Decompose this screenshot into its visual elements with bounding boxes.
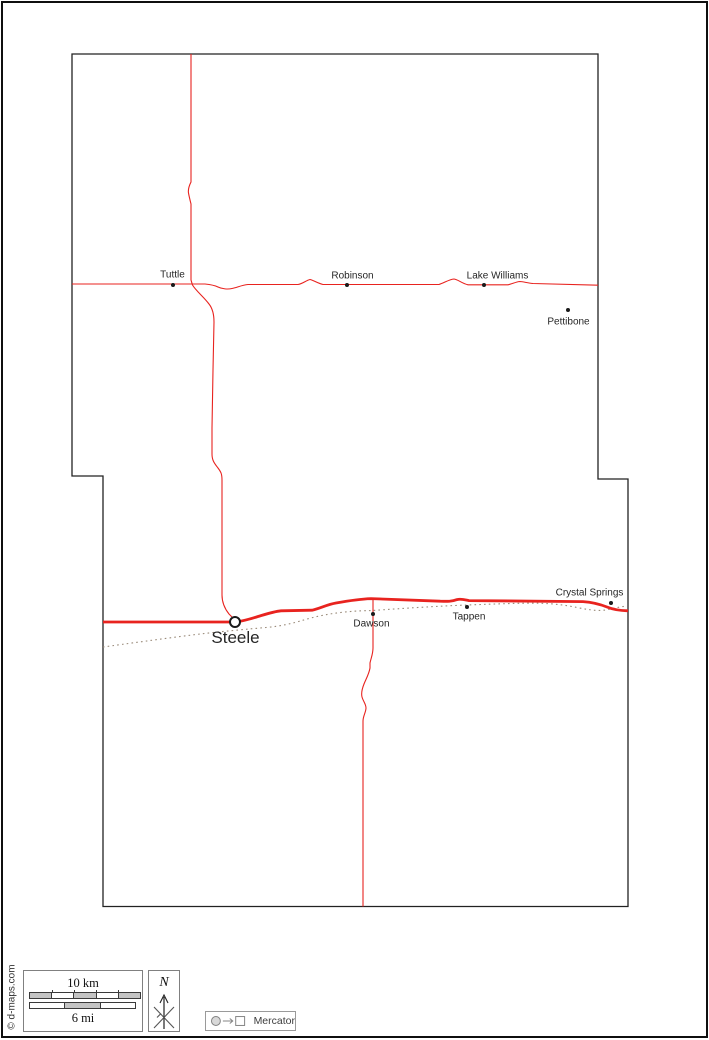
scale-bar-km <box>29 992 141 999</box>
town-dot-tappen <box>465 605 469 609</box>
legend-symbols <box>209 1014 249 1028</box>
town-dot-tuttle <box>171 283 175 287</box>
town-label-tappen: Tappen <box>453 612 486 623</box>
town-dot-crystal-springs <box>609 601 613 605</box>
map-page: TuttleRobinsonLake WilliamsPettiboneStee… <box>0 0 709 1040</box>
town-label-dawson: Dawson <box>353 619 389 630</box>
scale-segment <box>30 1003 64 1008</box>
projection-legend: Mercator <box>205 1011 296 1031</box>
town-label-pettibone: Pettibone <box>547 317 589 328</box>
town-label-lake-williams: Lake Williams <box>467 271 529 282</box>
town-label-robinson: Robinson <box>331 271 373 282</box>
county-seat-marker-steele <box>229 616 241 628</box>
scale-segment <box>100 1003 135 1008</box>
scale-tick <box>118 990 119 993</box>
scale-segment <box>51 993 73 998</box>
county-outline <box>72 54 628 907</box>
projection-label: Mercator <box>254 1015 295 1027</box>
scale-tick <box>52 990 53 993</box>
scale-segment <box>118 993 140 998</box>
scale-km-label: 10 km <box>24 976 142 991</box>
town-dot-dawson <box>371 612 375 616</box>
scale-tick <box>96 990 97 993</box>
scale-box: 10 km 6 mi <box>23 970 143 1032</box>
scale-tick <box>74 990 75 993</box>
scale-segment <box>64 1003 99 1008</box>
scale-segment <box>96 993 118 998</box>
town-dot-pettibone <box>566 308 570 312</box>
arrow-icon <box>223 1019 233 1024</box>
town-dot-robinson <box>345 283 349 287</box>
scale-segment <box>30 993 51 998</box>
town-label-crystal-springs: Crystal Springs <box>556 588 624 599</box>
town-label-tuttle: Tuttle <box>160 270 185 281</box>
north-label: N <box>149 975 179 991</box>
county-map-svg <box>0 0 709 1040</box>
dmaps-credit: © d-maps.com <box>7 964 18 1029</box>
scale-mi-label: 6 mi <box>24 1011 142 1026</box>
compass-icon <box>151 992 177 1030</box>
north-box: N <box>148 970 180 1032</box>
scale-segment <box>73 993 95 998</box>
city-circle-icon <box>211 1017 220 1026</box>
town-label-steele: Steele <box>211 628 259 648</box>
town-dot-lake-williams <box>482 283 486 287</box>
scale-bar-mi <box>29 1002 136 1009</box>
map-square-icon <box>236 1017 245 1026</box>
